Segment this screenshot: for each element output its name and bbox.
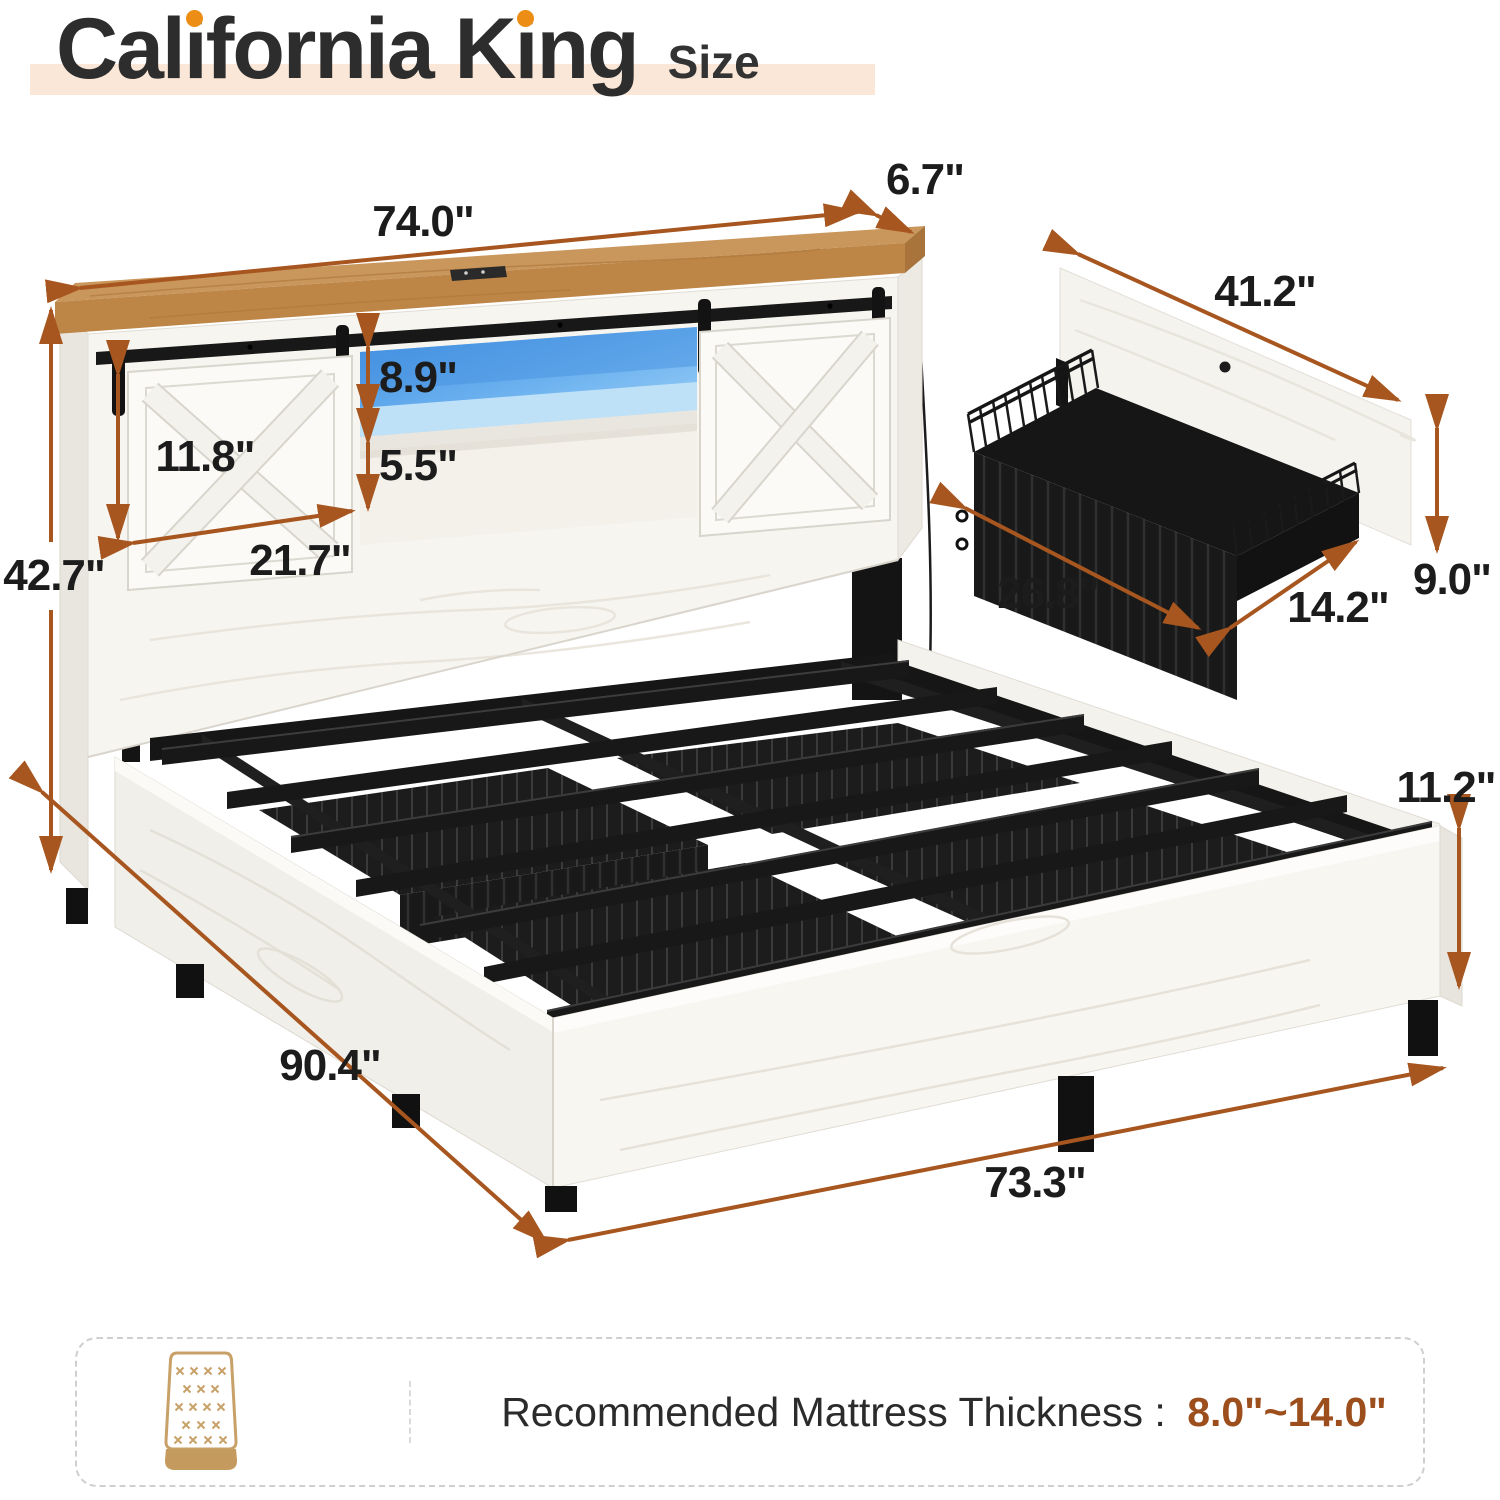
product-dimension-diagram: California King Size — [0, 0, 1500, 1500]
dim-basket-width: 26.8" — [997, 569, 1099, 619]
dim-basket-depth: 14.2" — [1287, 583, 1389, 633]
mattress-note-value: 8.0"~14.0" — [1187, 1389, 1387, 1436]
dim-bed-length: 90.4" — [279, 1041, 381, 1091]
dim-barn-door-height: 11.8" — [155, 432, 254, 482]
mattress-recommendation: Recommended Mattress Thickness : 8.0"~14… — [477, 1339, 1411, 1485]
dim-headboard-depth: 6.7" — [886, 155, 964, 205]
dim-panel-width: 41.2" — [1214, 267, 1316, 317]
dim-led-shelf-height: 8.9" — [379, 353, 457, 403]
mattress-note-banner: Recommended Mattress Thickness : 8.0"~14… — [75, 1337, 1425, 1487]
barn-door-right — [700, 318, 890, 536]
banner-divider — [409, 1381, 411, 1443]
bed-illustration — [0, 0, 1500, 1500]
dim-bed-width: 73.3" — [984, 1158, 1086, 1208]
dim-headboard-height: 42.7" — [3, 551, 105, 601]
dim-barn-door-width: 21.7" — [249, 536, 351, 586]
basket-detail-inset — [957, 268, 1415, 700]
dim-panel-height: 9.0" — [1413, 555, 1491, 605]
dim-frame-height: 11.2" — [1396, 763, 1495, 813]
mattress-note-label: Recommended Mattress Thickness : — [501, 1389, 1177, 1436]
mattress-icon — [161, 1349, 241, 1475]
bed-frame — [66, 640, 1462, 1212]
dim-headboard-width: 74.0" — [372, 197, 474, 247]
dim-lower-shelf-height: 5.5" — [379, 441, 457, 491]
